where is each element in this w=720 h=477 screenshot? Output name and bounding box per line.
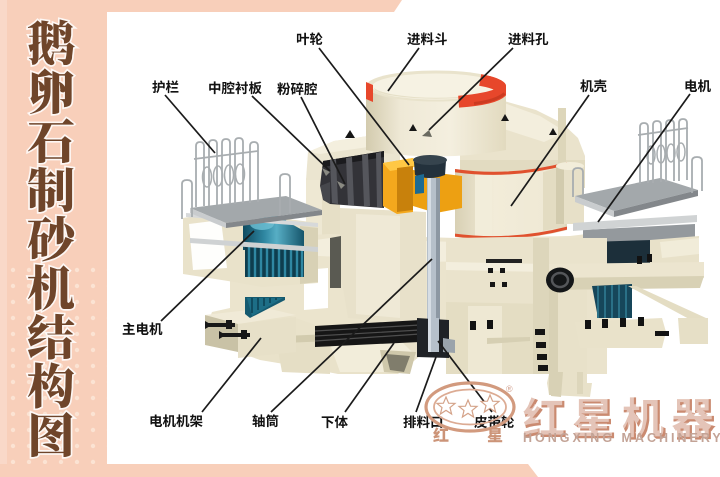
svg-text:®: ®: [506, 384, 513, 394]
svg-text:HONGXING MACHINERY: HONGXING MACHINERY: [523, 431, 720, 445]
